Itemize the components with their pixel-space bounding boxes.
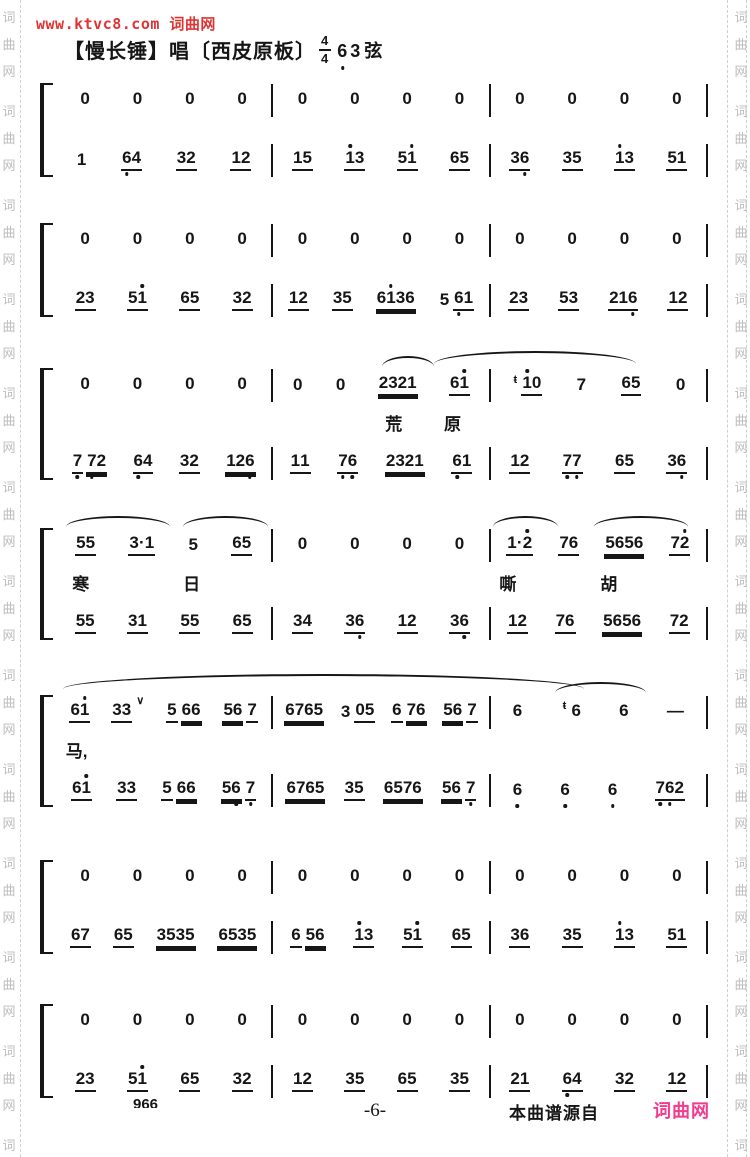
beat-group: 0: [79, 375, 90, 395]
note-digit: 1: [80, 701, 89, 720]
note-digit: 7: [87, 452, 96, 471]
rail-watermark-char: 网: [2, 246, 15, 273]
note-digit: 5: [365, 701, 374, 720]
note-digit: 5: [572, 149, 581, 168]
note-digit: 3: [233, 289, 242, 308]
note-digit: 6: [245, 452, 254, 471]
note-token: 0: [132, 867, 143, 887]
rail-watermark-char: 词: [734, 474, 747, 501]
score: 0000000000001643212151351653635135100000…: [56, 0, 708, 1157]
beat-group: 6136: [376, 289, 416, 311]
lyric-syllable: 日: [183, 570, 200, 595]
note-digit: 3: [615, 1070, 624, 1089]
beat-group: 6765: [285, 779, 325, 801]
sheet-music-page: 词曲网词曲网词曲网词曲网词曲网词曲网词曲网词曲网词曲网词曲网词曲网词曲网词曲网 …: [0, 0, 750, 1157]
beat-group: 11: [290, 452, 311, 474]
note-digit: 0: [298, 535, 307, 554]
note-digit: 6: [398, 1070, 407, 1089]
rail-watermark-char: 网: [734, 340, 747, 367]
note-digit: 2: [510, 1070, 519, 1089]
note-digit: 5: [190, 289, 199, 308]
rail-watermark-char: 网: [2, 434, 15, 461]
note-token: 5656: [604, 534, 644, 556]
measure: 0000: [273, 230, 488, 250]
note-token: 0: [349, 230, 360, 250]
note-digit: 6: [453, 701, 462, 720]
beat-group: 2321: [378, 374, 418, 396]
note-digit: 1: [145, 534, 154, 553]
rail-watermark-char: 曲: [734, 501, 747, 528]
note-token: 762: [655, 779, 685, 801]
note-digit: 2: [242, 1070, 251, 1089]
beat-group: 33: [116, 779, 137, 801]
note-token: 0: [671, 1011, 682, 1031]
beat-group: 32: [232, 289, 253, 311]
note-token: 61: [449, 374, 470, 396]
note-digit: 6: [355, 612, 364, 631]
note-digit: 5: [242, 612, 251, 631]
note-digit: 2: [236, 452, 245, 471]
note-digit: 1: [520, 1070, 529, 1089]
measure: 00232161: [273, 374, 488, 396]
note-digit: 6: [450, 374, 459, 393]
beat-group: 656: [290, 926, 325, 948]
rail-watermark-char: 词: [2, 850, 15, 877]
note-token: 65: [397, 1070, 418, 1092]
beat-group: 762: [655, 779, 685, 801]
note-digit: 6: [348, 452, 357, 471]
note-digit: 1: [226, 452, 235, 471]
beat-group: 12: [509, 452, 530, 474]
note-digit: 6: [231, 779, 240, 798]
note-digit: 5: [398, 149, 407, 168]
barline: [706, 224, 708, 257]
note-digit: 7: [556, 612, 565, 631]
note-token: 72: [669, 534, 690, 556]
note-token: 0: [619, 867, 630, 887]
note-digit: 0: [402, 535, 411, 554]
note-digit: 0: [567, 230, 576, 249]
beat-group: 65: [621, 374, 642, 396]
note-digit: 1: [386, 289, 395, 308]
rail-watermark-char: 词: [734, 380, 747, 407]
note-token: 0: [184, 1011, 195, 1031]
notation-row: 61335665676765356576567666762: [56, 769, 708, 811]
beat-group: 0: [454, 535, 465, 555]
note-token: 67: [70, 926, 91, 948]
note-token: 0: [454, 230, 465, 250]
beat-group: 32: [614, 1070, 635, 1092]
note-digit: 3: [341, 703, 350, 722]
beat-group: 0: [349, 1011, 360, 1031]
lyrics-row: 马,: [56, 733, 708, 769]
note-token: 7: [465, 779, 476, 801]
note-token: 6765: [284, 701, 324, 723]
beat-group: 64: [121, 149, 142, 171]
note-digit: 3: [396, 289, 405, 308]
beat-group: 305: [340, 701, 375, 723]
note-token: 65: [621, 374, 642, 396]
note-digit: 0: [672, 230, 681, 249]
beat-group: 566: [161, 779, 196, 801]
note-digit: 6: [70, 701, 79, 720]
rail-watermark-char: 曲: [734, 219, 747, 246]
beat-group: 65: [449, 149, 470, 171]
note-digit: 5: [76, 534, 85, 553]
note-token: 0: [454, 867, 465, 887]
measure: 0000: [491, 1011, 706, 1031]
beat-group: 12: [292, 1070, 313, 1092]
beat-group: 0: [401, 230, 412, 250]
note-digit: 0: [185, 867, 194, 886]
note-token: 6: [559, 781, 570, 801]
note-digit: 6: [305, 779, 314, 798]
note-digit: 3: [450, 1070, 459, 1089]
note-digit: 2: [679, 612, 688, 631]
beat-group: 0: [184, 230, 195, 250]
note-token: 33: [116, 779, 137, 801]
note-digit: 5: [167, 701, 176, 720]
note-token: 0: [79, 1011, 90, 1031]
note-digit: 5: [302, 149, 311, 168]
beat-group: 23: [75, 289, 96, 311]
note-digit: 7: [466, 779, 475, 798]
note-token: 12: [397, 612, 418, 634]
measure: 0000: [56, 90, 271, 110]
note-token: 0: [132, 375, 143, 395]
note-digit: 1: [615, 926, 624, 945]
rail-watermark-char: 词: [2, 756, 15, 783]
system-bracket: [40, 1004, 53, 1098]
note-digit: 2: [76, 289, 85, 308]
beat-group: —: [666, 702, 685, 722]
measure: 23516532: [56, 289, 271, 311]
note-token: 6576: [383, 779, 423, 801]
note-token: 0: [514, 230, 525, 250]
note-digit: 3: [624, 149, 633, 168]
lyrics-row: 荒原: [56, 406, 708, 442]
note-digit: 1: [407, 149, 416, 168]
beat-group: 1·2: [506, 534, 533, 556]
note-digit: 1: [668, 289, 677, 308]
note-digit: 5: [624, 534, 633, 553]
slur-arc: [493, 516, 558, 527]
lyric-syllable: 原: [444, 410, 461, 435]
beat-group: 0: [619, 1011, 630, 1031]
note-token: 64: [133, 452, 154, 474]
rail-watermark-char: 网: [734, 528, 747, 555]
rail-watermark-char: 网: [2, 810, 15, 837]
rail-watermark-char: 曲: [2, 125, 15, 152]
beat-group: 76: [558, 534, 579, 556]
note-token: 2321: [385, 452, 425, 474]
beat-group: 0: [132, 375, 143, 395]
note-token: 0: [514, 90, 525, 110]
note-digit: 7: [338, 452, 347, 471]
note-digit: 6: [571, 702, 580, 721]
rail-watermark-char: 词: [734, 568, 747, 595]
beat-group: 0: [401, 1011, 412, 1031]
note-token: 77: [562, 452, 583, 474]
note-digit: 6: [520, 926, 529, 945]
note-digit: 1: [508, 612, 517, 631]
note-digit: 2: [379, 374, 388, 393]
note-digit: 6: [405, 289, 414, 308]
beat-group: 31: [127, 612, 148, 634]
rail-watermark-char: 曲: [2, 31, 15, 58]
measure: 1·276565672: [491, 534, 706, 556]
beat-group: 3535: [156, 926, 196, 948]
note-digit: 1: [414, 452, 423, 471]
beat-group: 67: [70, 926, 91, 948]
music-system: 6133∨56656767653056765676ŧ66—马,613356656…: [56, 691, 708, 811]
note-digit: 1: [459, 374, 468, 393]
grace-mark: ŧ: [510, 374, 520, 387]
note-digit: 1: [615, 149, 624, 168]
beat-group: 23: [508, 289, 529, 311]
beat-group: 21: [509, 1070, 530, 1092]
note-digit: 7: [246, 779, 255, 798]
note-digit: 1: [507, 534, 516, 553]
note-token: 0: [184, 867, 195, 887]
note-digit: 0: [672, 90, 681, 109]
beat-group: 0: [671, 867, 682, 887]
note-token: 32: [614, 1070, 635, 1092]
note-digit: 2: [186, 149, 195, 168]
note-digit: 1: [462, 452, 471, 471]
music-system: 553·156500001·276565672寒日嘶胡5531556534361…: [56, 524, 708, 644]
note-digit: 5: [459, 149, 468, 168]
note-digit: 0: [80, 1011, 89, 1030]
note-token: 5: [439, 291, 450, 311]
notation-row: 67653535653565613516536351351: [56, 916, 708, 958]
note-digit: 5: [605, 534, 614, 553]
beat-group: ŧ6: [559, 702, 581, 722]
beat-group: 0: [184, 867, 195, 887]
note-digit: 6: [459, 612, 468, 631]
note-token: 0: [79, 90, 90, 110]
note-digit: 6: [632, 612, 641, 631]
note-token: 13: [353, 926, 374, 948]
note-token: 12: [666, 1070, 687, 1092]
beat-group: 36: [666, 452, 687, 474]
note-digit: 6: [182, 701, 191, 720]
note-digit: 2: [302, 1070, 311, 1089]
note-token: 0: [401, 1011, 412, 1031]
note-digit: 6: [377, 289, 386, 308]
note-digit: 6: [613, 612, 622, 631]
beat-group: 35: [562, 149, 583, 171]
note-digit: 6: [665, 779, 674, 798]
beat-group: 5656: [602, 612, 642, 634]
note-digit: 0: [185, 1011, 194, 1030]
rail-watermark-char: 网: [2, 904, 15, 931]
note-token: 6765: [285, 779, 325, 801]
note-token: 0: [184, 375, 195, 395]
note-digit: 6: [180, 289, 189, 308]
note-digit: 3: [569, 289, 578, 308]
beat-group: 13: [614, 926, 635, 948]
note-digit: 6: [134, 452, 143, 471]
beat-group: 0: [566, 90, 577, 110]
beat-group: 0: [184, 90, 195, 110]
beat-group: 64: [562, 1070, 583, 1092]
note-digit: 7: [247, 701, 256, 720]
note-digit: 7: [407, 701, 416, 720]
note-token: 0: [349, 1011, 360, 1031]
note-token: 65: [451, 926, 472, 948]
rail-watermark-char: 网: [2, 622, 15, 649]
beat-group: 6: [559, 781, 570, 801]
measure: 0000: [273, 1011, 488, 1031]
measure: 6765356576567: [273, 779, 488, 801]
rail-watermark-char: 曲: [734, 31, 747, 58]
note-digit: 0: [298, 230, 307, 249]
beat-group: 72: [669, 612, 690, 634]
beat-group: 561: [439, 289, 474, 311]
note-token: 6: [290, 926, 301, 948]
note-digit: 3: [667, 452, 676, 471]
system-bracket: [40, 368, 53, 480]
note-digit: 0: [80, 375, 89, 394]
beat-group: 55: [75, 612, 96, 634]
note-token: 7: [576, 376, 587, 396]
note-token: 64: [121, 149, 142, 171]
beat-group: 32: [232, 1070, 253, 1092]
beat-group: 12: [507, 612, 528, 634]
rail-watermark-char: 曲: [2, 783, 15, 810]
note-digit: ŧ: [560, 700, 568, 712]
barline: [706, 447, 708, 480]
note-digit: 5: [342, 289, 351, 308]
note-token: 51: [666, 926, 687, 948]
note-token: 1·2: [506, 534, 533, 556]
rail-watermark-char: 曲: [2, 501, 15, 528]
beat-group: 53: [558, 289, 579, 311]
note-token: 0: [132, 90, 143, 110]
note-digit: 3: [333, 289, 342, 308]
note-token: 34: [292, 612, 313, 634]
note-digit: 7: [295, 701, 304, 720]
note-digit: 5: [123, 926, 132, 945]
note-token: 5: [161, 779, 172, 801]
beat-group: 0: [454, 1011, 465, 1031]
note-token: 66: [181, 701, 202, 723]
beat-group: 55: [179, 612, 200, 634]
note-digit: 6: [285, 701, 294, 720]
measure: 6133∨566567: [56, 701, 271, 723]
rail-watermark-char: 曲: [2, 971, 15, 998]
note-token: 61: [453, 289, 474, 311]
note-digit: ŧ: [511, 374, 519, 386]
beat-group: 0: [132, 90, 143, 110]
beat-group: 0: [514, 90, 525, 110]
note-token: 0: [401, 867, 412, 887]
beat-group: 35: [562, 926, 583, 948]
beat-group: 0: [79, 867, 90, 887]
note-token: 7: [72, 452, 83, 474]
note-digit: 6: [560, 781, 569, 800]
note-digit: 0: [455, 867, 464, 886]
note-token: —: [666, 702, 685, 722]
beat-group: 6: [512, 781, 523, 801]
note-digit: 5: [223, 701, 232, 720]
note-token: 5: [166, 701, 177, 723]
rail-watermark-char: 词: [734, 98, 747, 125]
note-digit: 2: [520, 452, 529, 471]
note-digit: 1: [137, 289, 146, 308]
beat-group: 2321: [385, 452, 425, 474]
note-token: 0: [349, 867, 360, 887]
note-token: 5: [188, 536, 199, 556]
barline: [706, 774, 708, 807]
note-token: 0: [79, 867, 90, 887]
note-token: 21: [509, 1070, 530, 1092]
measure: 676535356535: [56, 926, 271, 948]
note-token: 12: [667, 289, 688, 311]
note-digit: 6: [454, 289, 463, 308]
slur-arc: [63, 674, 585, 689]
note-digit: 0: [133, 1011, 142, 1030]
beat-group: 676: [391, 701, 426, 723]
note-token: 13: [614, 149, 635, 171]
note-digit: 0: [672, 867, 681, 886]
note-digit: 3: [177, 149, 186, 168]
system-bracket: [40, 223, 53, 317]
beat-group: 0: [454, 90, 465, 110]
beat-group: 0: [401, 867, 412, 887]
note-digit: 6: [218, 926, 227, 945]
note-digit: 1: [293, 1070, 302, 1089]
note-token: 10: [521, 374, 542, 396]
note-digit: 0: [237, 90, 246, 109]
note-digit: 2: [405, 452, 414, 471]
note-digit: 0: [185, 375, 194, 394]
note-digit: 6: [569, 534, 578, 553]
note-token: 7: [246, 701, 257, 723]
rail-watermark-char: 词: [734, 944, 747, 971]
barline: [706, 144, 708, 177]
note-token: 76: [555, 612, 576, 634]
rail-watermark-char: 曲: [734, 971, 747, 998]
system-bracket: [40, 695, 53, 807]
note-digit: 2: [298, 289, 307, 308]
note-digit: 6: [286, 779, 295, 798]
beat-group: 65: [451, 926, 472, 948]
barline: [706, 1065, 708, 1098]
rail-watermark-char: 词: [734, 1132, 747, 1157]
note-digit: 6: [608, 781, 617, 800]
note-digit: 6: [452, 452, 461, 471]
beat-group: 0: [236, 230, 247, 250]
note-digit: 0: [80, 867, 89, 886]
measure: 34361236: [273, 612, 488, 634]
note-token: 0: [297, 230, 308, 250]
note-token: 35: [344, 779, 365, 801]
beat-group: 0: [184, 375, 195, 395]
note-digit: 3: [128, 612, 137, 631]
note-digit: 5: [393, 779, 402, 798]
beat-group: 0: [297, 230, 308, 250]
beat-group: 567: [221, 779, 256, 801]
measure: 553·1565: [56, 534, 271, 556]
beat-group: 216: [608, 289, 638, 311]
note-digit: 7: [670, 534, 679, 553]
beat-group: 0: [132, 230, 143, 250]
note-token: 0: [514, 1011, 525, 1031]
beat-group: 6: [512, 702, 523, 722]
note-token: 3535: [156, 926, 196, 948]
